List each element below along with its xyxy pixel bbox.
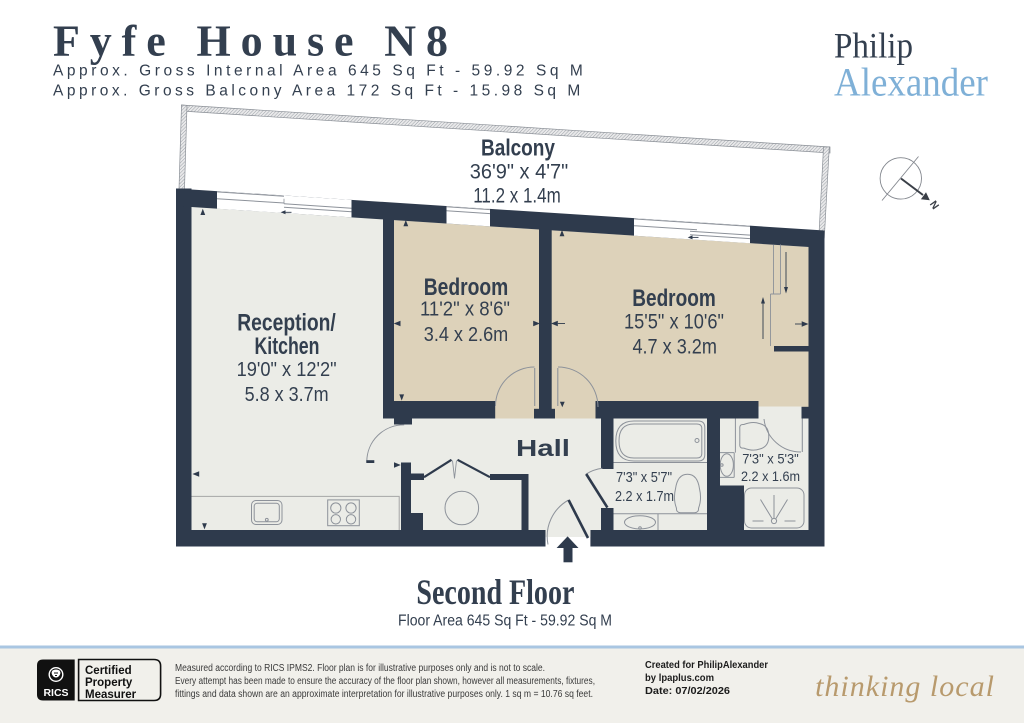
svg-text:5.8 x 3.7m: 5.8 x 3.7m <box>245 384 329 406</box>
svg-text:Measurer: Measurer <box>85 689 137 701</box>
svg-text:Approx. Gross Balcony Area 172: Approx. Gross Balcony Area 172 Sq Ft - 1… <box>53 83 584 100</box>
svg-text:Second Floor: Second Floor <box>416 572 574 612</box>
svg-text:by lpaplus.com: by lpaplus.com <box>645 672 714 684</box>
svg-text:Date: 07/02/2026: Date: 07/02/2026 <box>645 685 730 697</box>
svg-text:Property: Property <box>85 677 133 689</box>
svg-text:11.2 x 1.4m: 11.2 x 1.4m <box>473 185 561 208</box>
svg-text:thinking local: thinking local <box>815 670 995 703</box>
svg-text:19'0" x 12'2": 19'0" x 12'2" <box>237 359 337 381</box>
svg-text:Measured according to RICS IPM: Measured according to RICS IPMS2. Floor … <box>175 663 545 674</box>
svg-text:Hall: Hall <box>516 435 570 461</box>
svg-text:2.2 x 1.7m: 2.2 x 1.7m <box>615 489 674 505</box>
svg-text:11'2" x 8'6": 11'2" x 8'6" <box>420 298 510 320</box>
svg-text:Kitchen: Kitchen <box>255 333 320 360</box>
svg-text:Bedroom: Bedroom <box>424 274 509 301</box>
svg-text:2.2 x 1.6m: 2.2 x 1.6m <box>741 469 800 484</box>
svg-text:Certified: Certified <box>85 665 132 677</box>
svg-text:Every attempt has been made to: Every attempt has been made to ensure th… <box>175 676 595 687</box>
svg-text:36'9" x 4'7": 36'9" x 4'7" <box>470 160 569 183</box>
svg-text:Balcony: Balcony <box>481 135 555 161</box>
svg-text:7'3" x 5'3": 7'3" x 5'3" <box>742 451 799 466</box>
svg-text:Fyfe House N8: Fyfe House N8 <box>53 17 458 66</box>
svg-text:fittings and data shown are an: fittings and data shown are an approxima… <box>175 689 593 700</box>
svg-text:15'5" x 10'6": 15'5" x 10'6" <box>624 310 724 333</box>
svg-text:4.7 x 3.2m: 4.7 x 3.2m <box>632 336 717 359</box>
svg-text:Bedroom: Bedroom <box>632 285 716 312</box>
svg-text:Floor Area 645 Sq Ft - 59.92 S: Floor Area 645 Sq Ft - 59.92 Sq M <box>398 613 612 630</box>
svg-text:7'3" x 5'7": 7'3" x 5'7" <box>616 470 672 486</box>
svg-text:Created for PhilipAlexander: Created for PhilipAlexander <box>645 659 768 671</box>
svg-text:RICS: RICS <box>43 687 68 699</box>
svg-text:Approx. Gross Internal Area 64: Approx. Gross Internal Area 645 Sq Ft - … <box>53 63 586 80</box>
svg-text:3.4 x 2.6m: 3.4 x 2.6m <box>424 324 509 346</box>
svg-text:Alexander: Alexander <box>834 60 988 105</box>
